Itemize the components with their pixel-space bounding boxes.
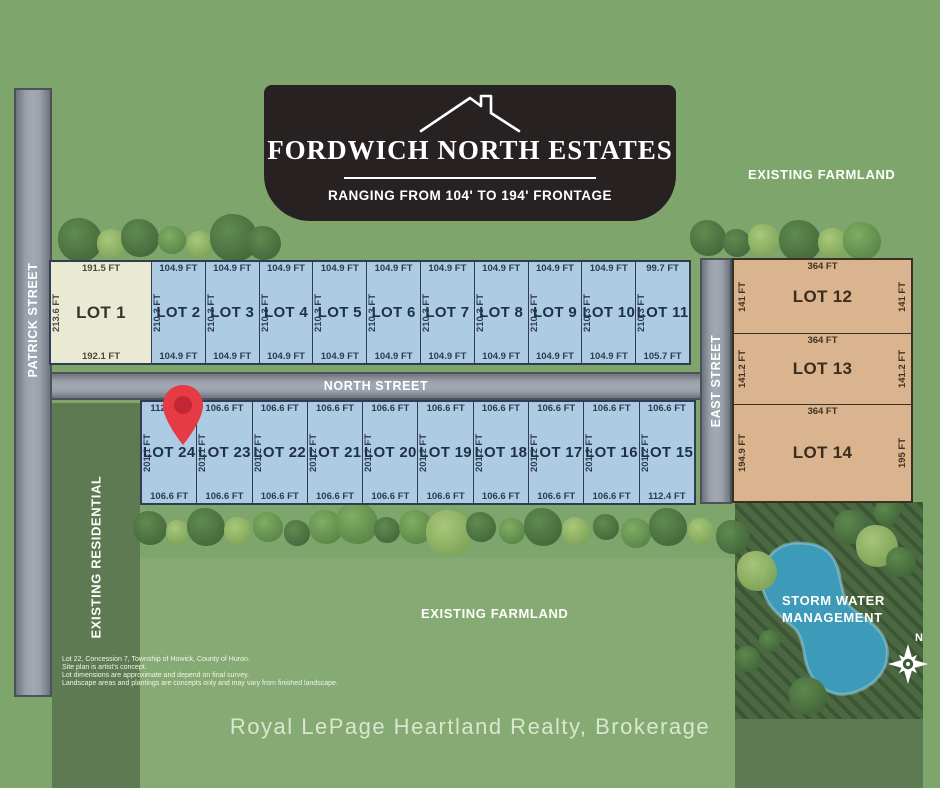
location-pin-icon[interactable] [160, 383, 206, 447]
tree-icon [58, 218, 102, 262]
lot-dimension-side: 201.2 FT [308, 433, 319, 471]
lot-dimension-bottom: 104.9 FT [260, 351, 313, 362]
tree-icon [247, 226, 281, 260]
lot-dimension-side: 201.2 FT [584, 433, 595, 471]
lot-dimension-top: 106.6 FT [474, 403, 528, 414]
east-street-road: EAST STREET [700, 258, 732, 504]
lot-dimension-top: 104.9 FT [475, 263, 528, 274]
lot-lot-20[interactable]: 106.6 FT201.2 FT106.6 FTLOT 20 [362, 402, 417, 503]
tree-icon [748, 224, 780, 256]
lot-lot-6[interactable]: 104.9 FT210.3 FT104.9 FTLOT 6 [366, 262, 420, 363]
lot-lot-7[interactable]: 104.9 FT210.3 FT104.9 FTLOT 7 [420, 262, 474, 363]
patrick-street-road: PATRICK STREET [14, 88, 52, 697]
tree-icon [716, 520, 750, 554]
lot-lot-3[interactable]: 104.9 FT210.3 FT104.9 FTLOT 3 [205, 262, 259, 363]
lot-dimension-top: 104.9 FT [529, 263, 582, 274]
lot-dimension-side: 201.2 FT [474, 433, 485, 471]
tree-icon [737, 551, 777, 591]
title-banner: FORDWICH NORTH ESTATES RANGING FROM 104'… [264, 85, 676, 221]
lot-dimension-top: 106.6 FT [640, 403, 694, 414]
lot-lot-19[interactable]: 106.6 FT201.2 FT106.6 FTLOT 19 [417, 402, 472, 503]
lot-dimension-side: 201.2 FT [253, 433, 264, 471]
bottom-lot-row: 112.9 FT201.1 FT106.6 FTLOT 24106.6 FT20… [140, 400, 696, 505]
storm-water-line2: MANAGEMENT [782, 609, 885, 626]
tree-icon [779, 220, 821, 262]
disclaimer-line: Site plan is artist's concept. [62, 664, 342, 672]
lot-dimension-side: 201.2 FT [529, 433, 540, 471]
lot-dimension-bottom: 106.6 FT [363, 491, 417, 502]
lot-dimension-top: 106.6 FT [418, 403, 472, 414]
house-roof-icon [414, 91, 526, 133]
tree-icon [158, 226, 186, 254]
lot-label: LOT 1 [76, 303, 126, 323]
compass-icon [886, 642, 930, 686]
lot-dimension-bottom: 104.9 FT [206, 351, 259, 362]
lot-lot-10[interactable]: 104.9 FT210.3 FT104.9 FTLOT 10 [581, 262, 635, 363]
tree-icon [253, 512, 283, 542]
disclaimer-line: Lot dimensions are approximate and depen… [62, 672, 342, 680]
tree-icon [759, 630, 781, 652]
lot-dimension-side: 213.6 FT [51, 293, 62, 331]
frontage-subtitle: RANGING FROM 104' TO 194' FRONTAGE [328, 188, 612, 203]
lot-dimension-top: 104.9 FT [206, 263, 259, 274]
tree-icon [466, 512, 496, 542]
lot-dimension-top: 106.6 FT [308, 403, 362, 414]
lot-dimension-side: 210.3 FT [582, 293, 593, 331]
lot-dimension-side: 210.3 FT [260, 293, 271, 331]
lot-dimension-bottom: 104.9 FT [529, 351, 582, 362]
lot-dimension-right: 141 FT [897, 281, 908, 311]
lot-dimension-left: 141 FT [737, 281, 748, 311]
lot-label: LOT 13 [793, 359, 852, 379]
tree-icon [735, 646, 761, 672]
east-street-label: EAST STREET [709, 335, 723, 428]
tree-icon [187, 508, 225, 546]
lot-label: LOT 5 [318, 304, 362, 321]
tree-icon [886, 547, 916, 577]
lot-lot-16[interactable]: 106.6 FT201.2 FT106.6 FTLOT 16 [583, 402, 638, 503]
tree-icon [224, 517, 252, 545]
lot-dimension-bottom: 192.1 FT [51, 351, 151, 362]
top-lot-row: 191.5 FT213.6 FT192.1 FTLOT 1104.9 FT210… [49, 260, 691, 365]
existing-farmland-top-label: EXISTING FARMLAND [748, 167, 895, 182]
compass-rose: N [884, 632, 932, 691]
lot-lot-11[interactable]: 99.7 FT210.3 FT105.7 FTLOT 11 [635, 262, 689, 363]
lot-lot-15[interactable]: 106.6 FT201.2 FT112.4 FTLOT 15 [639, 402, 694, 503]
lot-dimension-top: 104.9 FT [421, 263, 474, 274]
disclaimer-line: Lot 22, Concession 7, Township of Howick… [62, 656, 342, 664]
lot-lot-1[interactable]: 191.5 FT213.6 FT192.1 FTLOT 1 [51, 262, 151, 363]
lot-label: LOT 12 [793, 287, 852, 307]
tree-icon [789, 677, 827, 715]
tree-icon [690, 220, 726, 256]
lot-lot-13[interactable]: 364 FT141.2 FT141.2 FTLOT 13 [734, 333, 911, 404]
lot-dimension-side: 210.3 FT [313, 293, 324, 331]
lot-dimension-bottom: 104.9 FT [421, 351, 474, 362]
lot-lot-12[interactable]: 364 FT141 FT141 FTLOT 12 [734, 260, 911, 333]
lot-dimension-bottom: 105.7 FT [636, 351, 689, 362]
lot-dimension-bottom: 106.6 FT [197, 491, 251, 502]
tree-icon [499, 518, 525, 544]
tree-icon [374, 517, 400, 543]
storm-water-label: STORM WATER MANAGEMENT [782, 592, 885, 626]
lot-dimension-top: 104.9 FT [260, 263, 313, 274]
tree-icon [562, 517, 590, 545]
lot-lot-9[interactable]: 104.9 FT210.3 FT104.9 FTLOT 9 [528, 262, 582, 363]
lot-dimension-top: 106.6 FT [363, 403, 417, 414]
lot-dimension-side: 201.1 FT [142, 433, 153, 471]
existing-residential-label: EXISTING RESIDENTIAL [89, 476, 104, 639]
disclaimer-text: Lot 22, Concession 7, Township of Howick… [62, 656, 342, 688]
lot-dimension-side: 210.3 FT [475, 293, 486, 331]
lot-dimension-bottom: 106.6 FT [253, 491, 307, 502]
tree-icon [843, 222, 881, 260]
lot-dimension-top: 104.9 FT [367, 263, 420, 274]
banner-divider [344, 177, 596, 179]
lot-dimension-side: 201.2 FT [640, 433, 651, 471]
lot-dimension-bottom: 106.6 FT [584, 491, 638, 502]
east-lot-column: 364 FT141 FT141 FTLOT 12364 FT141.2 FT14… [732, 258, 913, 503]
lot-dimension-side: 201.2 FT [418, 433, 429, 471]
north-street-label: NORTH STREET [324, 379, 428, 393]
lot-dimension-top: 104.9 FT [582, 263, 635, 274]
lot-dimension-right: 141.2 FT [897, 350, 908, 388]
tree-icon [426, 510, 472, 556]
lot-dimension-side: 210.3 FT [636, 293, 647, 331]
lot-lot-4[interactable]: 104.9 FT210.3 FT104.9 FTLOT 4 [259, 262, 313, 363]
lot-dimension-top: 106.6 FT [253, 403, 307, 414]
lot-dimension-right: 195 FT [897, 438, 908, 468]
lot-lot-18[interactable]: 106.6 FT201.2 FT106.6 FTLOT 18 [473, 402, 528, 503]
lot-dimension-side: 210.3 FT [421, 293, 432, 331]
lot-dimension-bottom: 106.6 FT [418, 491, 472, 502]
tree-icon [723, 229, 751, 257]
tree-icon [688, 518, 714, 544]
lot-dimension-top: 191.5 FT [51, 263, 151, 274]
lot-lot-8[interactable]: 104.9 FT210.3 FT104.9 FTLOT 8 [474, 262, 528, 363]
lot-dimension-bottom: 106.6 FT [474, 491, 528, 502]
lot-dimension-top: 99.7 FT [636, 263, 689, 274]
tree-icon [336, 502, 378, 544]
lot-dimension-top: 104.9 FT [313, 263, 366, 274]
tree-icon [593, 514, 619, 540]
lot-dimension-left: 141.2 FT [737, 350, 748, 388]
lot-dimension-bottom: 104.9 FT [582, 351, 635, 362]
tree-icon [133, 511, 167, 545]
lot-dimension-top: 106.6 FT [529, 403, 583, 414]
lot-dimension-top: 364 FT [734, 335, 911, 346]
lot-lot-22[interactable]: 106.6 FT201.2 FT106.6 FTLOT 22 [252, 402, 307, 503]
lot-dimension-top: 106.6 FT [584, 403, 638, 414]
tree-icon [121, 219, 159, 257]
lot-dimension-bottom: 106.6 FT [142, 491, 196, 502]
development-title: FORDWICH NORTH ESTATES [267, 135, 673, 166]
lot-dimension-bottom: 104.9 FT [152, 351, 205, 362]
tree-icon [524, 508, 562, 546]
site-plan: EXISTING RESIDENTIAL PATRICK STREET NORT… [0, 0, 940, 788]
lot-label: LOT 6 [372, 304, 416, 321]
brokerage-footer: Royal LePage Heartland Realty, Brokerage [0, 714, 940, 740]
lot-lot-5[interactable]: 104.9 FT210.3 FT104.9 FTLOT 5 [312, 262, 366, 363]
lot-lot-2[interactable]: 104.9 FT210.3 FT104.9 FTLOT 2 [151, 262, 205, 363]
lot-dimension-side: 210.3 FT [206, 293, 217, 331]
lot-dimension-bottom: 104.9 FT [367, 351, 420, 362]
storm-water-line1: STORM WATER [782, 592, 885, 609]
tree-icon [621, 518, 651, 548]
lot-dimension-side: 201.2 FT [363, 433, 374, 471]
lot-lot-21[interactable]: 106.6 FT201.2 FT106.6 FTLOT 21 [307, 402, 362, 503]
lot-dimension-side: 210.3 FT [529, 293, 540, 331]
lot-dimension-top: 364 FT [734, 261, 911, 272]
lot-dimension-top: 364 FT [734, 406, 911, 417]
lot-lot-17[interactable]: 106.6 FT201.2 FT106.6 FTLOT 17 [528, 402, 583, 503]
lot-dimension-bottom: 106.6 FT [529, 491, 583, 502]
lot-dimension-side: 210.3 FT [367, 293, 378, 331]
lot-dimension-bottom: 104.9 FT [475, 351, 528, 362]
tree-icon [284, 520, 310, 546]
existing-farmland-bottom-label: EXISTING FARMLAND [421, 606, 568, 621]
lot-dimension-bottom: 112.4 FT [640, 491, 694, 502]
lot-dimension-bottom: 106.6 FT [308, 491, 362, 502]
lot-dimension-side: 210.3 FT [152, 293, 163, 331]
patrick-street-label: PATRICK STREET [26, 262, 40, 377]
tree-icon [649, 508, 687, 546]
lot-dimension-bottom: 104.9 FT [313, 351, 366, 362]
tree-icon [874, 500, 900, 526]
north-street-road: NORTH STREET [52, 372, 700, 400]
disclaimer-line: Landscape areas and plantings are concep… [62, 680, 342, 688]
lot-dimension-left: 194.9 FT [737, 434, 748, 472]
lot-dimension-top: 104.9 FT [152, 263, 205, 274]
lot-lot-14[interactable]: 364 FT194.9 FT195 FTLOT 14 [734, 404, 911, 501]
lot-label: LOT 14 [793, 443, 852, 463]
